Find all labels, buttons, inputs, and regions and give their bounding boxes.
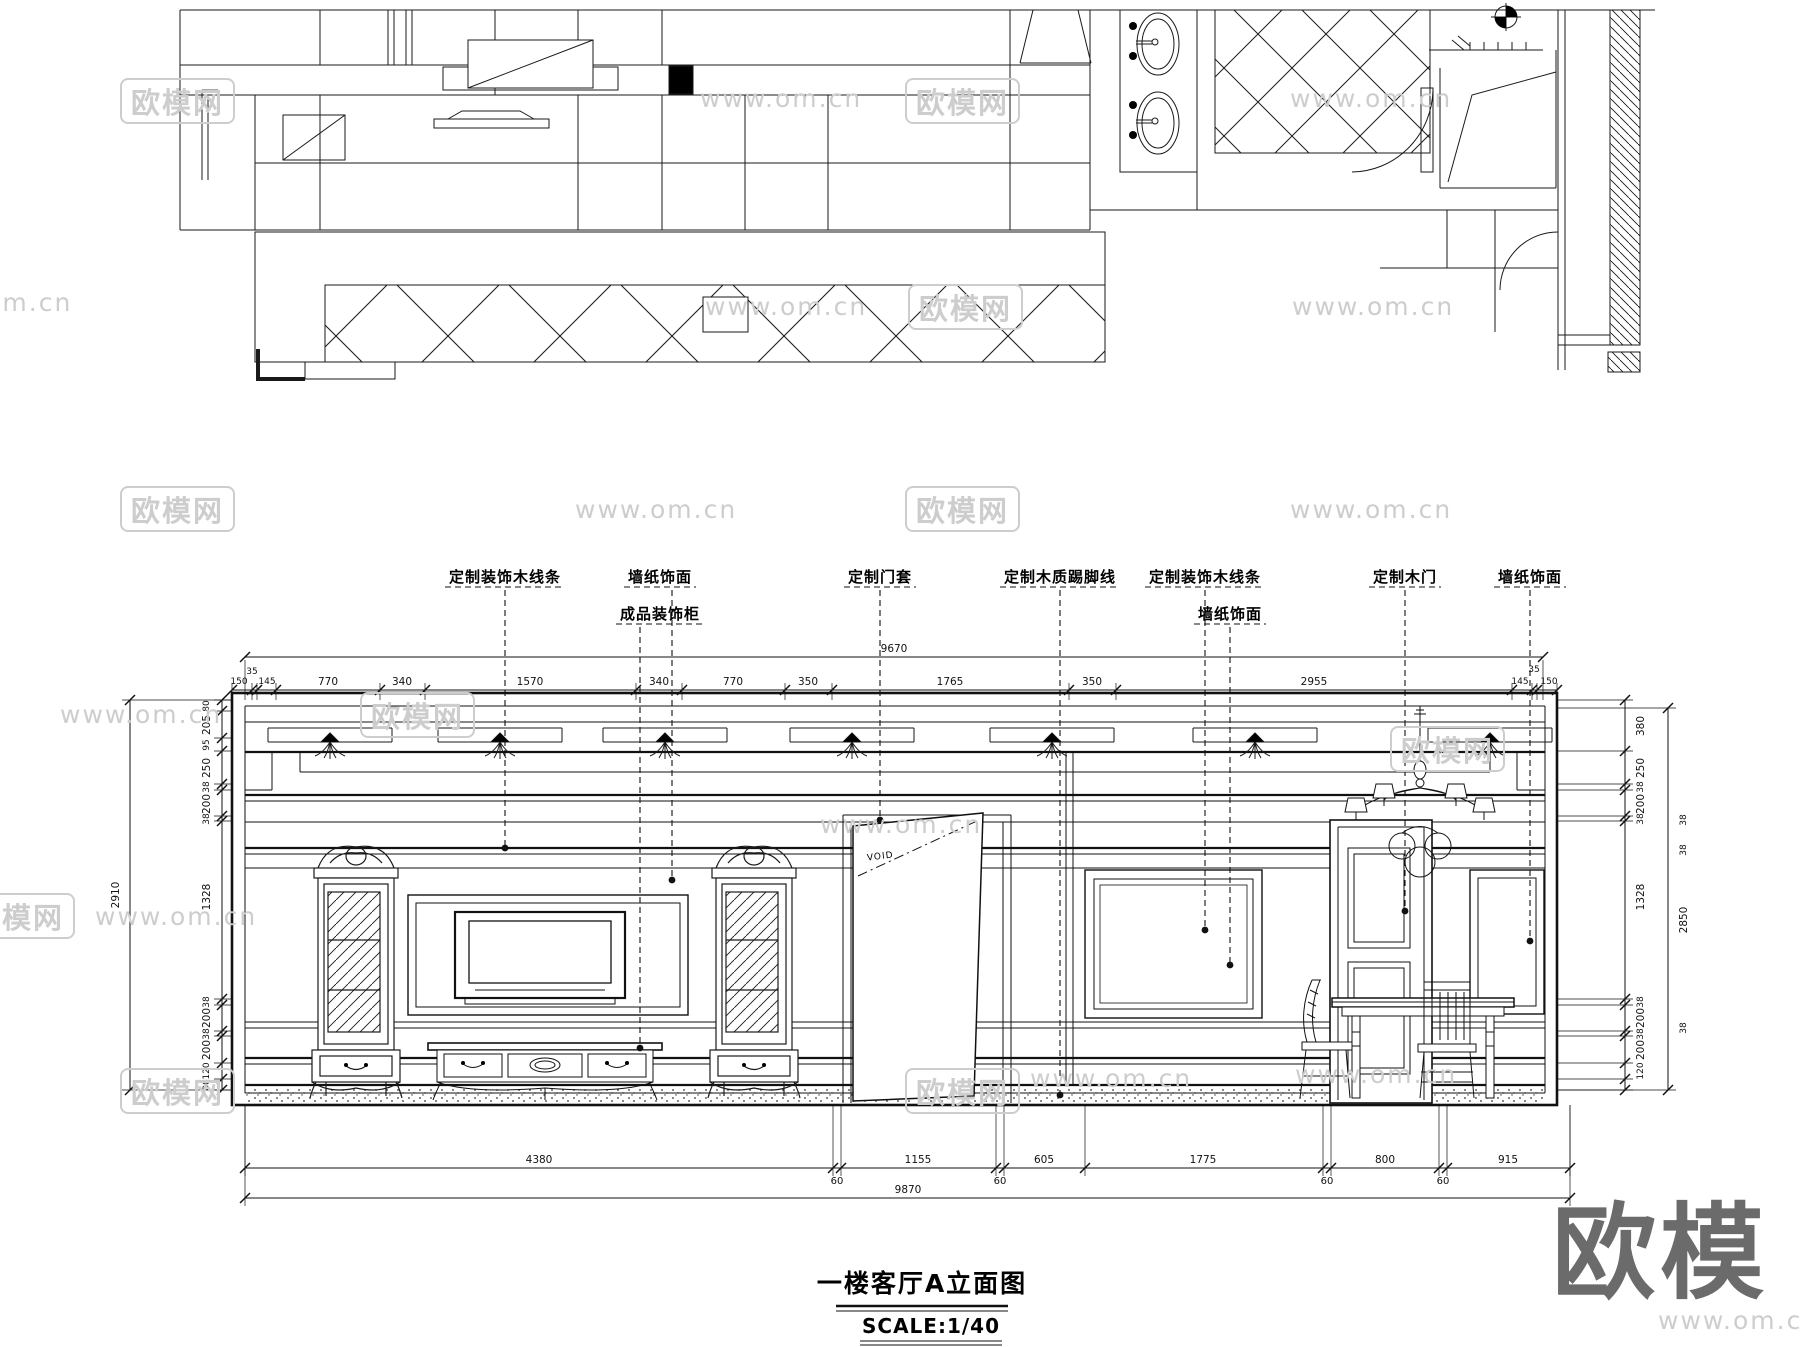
leader-dot (877, 817, 884, 824)
leader-dot (1202, 927, 1209, 934)
leader-dot (1057, 1092, 1064, 1099)
leader-dot (502, 845, 509, 852)
leader-dot (669, 877, 676, 884)
leader-dot (1527, 938, 1534, 945)
leader-dot (1227, 962, 1234, 969)
dimension-annotations (0, 0, 1800, 1347)
leader-dot (637, 1045, 644, 1052)
cad-sheet: VOID 一楼客厅A立面图 SCALE:1/40 欧模网 96701503514… (0, 0, 1800, 1347)
leader-dot (1402, 908, 1409, 915)
